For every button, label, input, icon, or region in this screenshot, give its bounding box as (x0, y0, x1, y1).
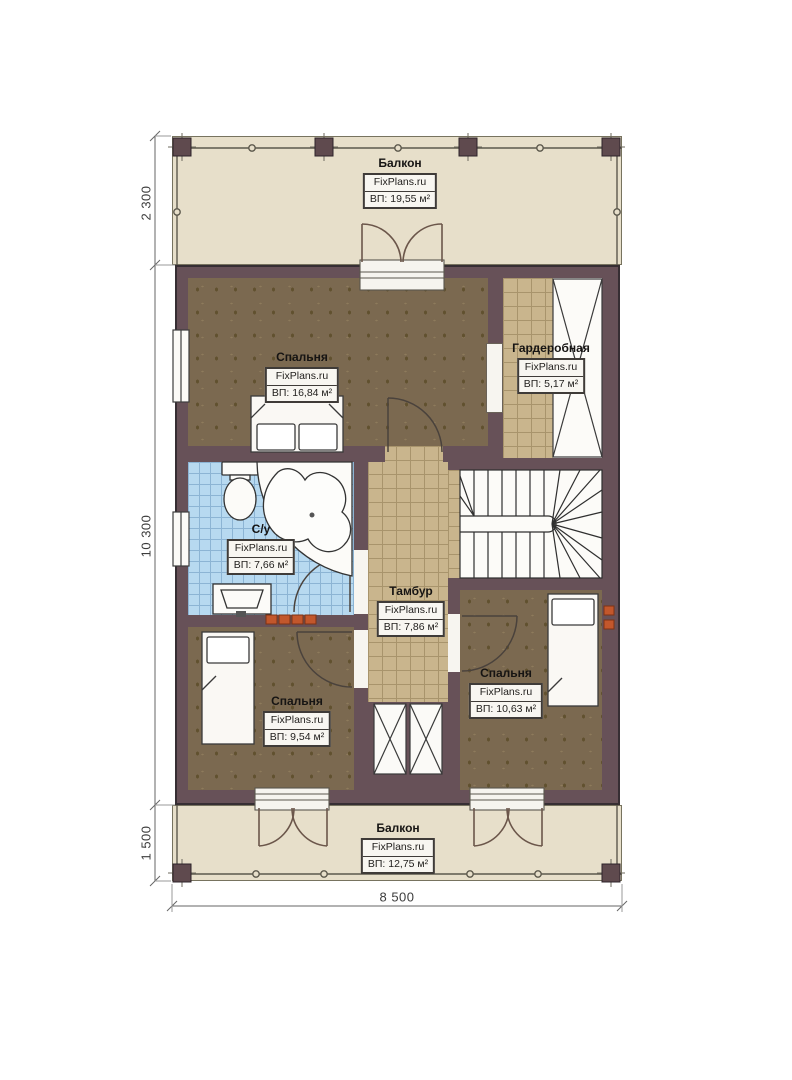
room-info-box: FixPlans.ru ВП: 19,55 м² (363, 173, 437, 209)
watermark: FixPlans.ru (379, 603, 443, 619)
room-name: Спальня (263, 694, 331, 708)
staircase (460, 470, 602, 578)
bed (548, 594, 598, 706)
room-label-bedroom-bottom-right: Спальня FixPlans.ru ВП: 10,63 м² (469, 666, 543, 719)
room-area: ВП: 16,84 м² (267, 385, 337, 402)
bed (202, 632, 254, 744)
room-name: Балкон (361, 821, 435, 835)
dimension-bottom-width: 8 500 (379, 890, 414, 905)
room-label-bedroom-top-left: Спальня FixPlans.ru ВП: 16,84 м² (265, 350, 339, 403)
watermark: FixPlans.ru (363, 840, 433, 856)
room-label-vestibule: Тамбур FixPlans.ru ВП: 7,86 м² (377, 584, 445, 637)
room-name: Спальня (265, 350, 339, 364)
room-info-box: FixPlans.ru ВП: 7,86 м² (377, 601, 445, 637)
room-label-bedroom-bottom-left: Спальня FixPlans.ru ВП: 9,54 м² (263, 694, 331, 747)
watermark: FixPlans.ru (471, 685, 541, 701)
closet-cells (374, 704, 442, 774)
room-area: ВП: 5,17 м² (519, 376, 583, 393)
watermark: FixPlans.ru (365, 175, 435, 191)
dimension-left-top: 2 300 (139, 185, 154, 220)
room-area: ВП: 10,63 м² (471, 701, 541, 718)
sink (213, 584, 271, 617)
room-info-box: FixPlans.ru ВП: 12,75 м² (361, 838, 435, 874)
room-area: ВП: 19,55 м² (365, 191, 435, 208)
room-area: ВП: 12,75 м² (363, 856, 433, 873)
toilet (222, 462, 258, 520)
dimension-left-middle: 10 300 (139, 515, 154, 558)
room-name: Гардеробная (512, 341, 590, 355)
watermark: FixPlans.ru (265, 713, 329, 729)
room-name: Спальня (469, 666, 543, 680)
room-area: ВП: 7,66 м² (229, 557, 293, 574)
room-name: Балкон (363, 156, 437, 170)
room-name: С/у (227, 522, 295, 536)
dimension-left-bottom: 1 500 (139, 825, 154, 860)
room-area: ВП: 7,86 м² (379, 619, 443, 636)
watermark: FixPlans.ru (267, 369, 337, 385)
watermark: FixPlans.ru (229, 541, 293, 557)
room-label-wardrobe: Гардеробная FixPlans.ru ВП: 5,17 м² (512, 341, 590, 394)
room-name: Тамбур (377, 584, 445, 598)
room-info-box: FixPlans.ru ВП: 10,63 м² (469, 683, 543, 719)
room-info-box: FixPlans.ru ВП: 9,54 м² (263, 711, 331, 747)
room-label-bathroom: С/у FixPlans.ru ВП: 7,66 м² (227, 522, 295, 575)
room-label-balcony-bottom: Балкон FixPlans.ru ВП: 12,75 м² (361, 821, 435, 874)
room-area: ВП: 9,54 м² (265, 729, 329, 746)
room-info-box: FixPlans.ru ВП: 16,84 м² (265, 367, 339, 403)
bed (251, 396, 343, 452)
watermark: FixPlans.ru (519, 360, 583, 376)
room-label-balcony-top: Балкон FixPlans.ru ВП: 19,55 м² (363, 156, 437, 209)
floor-plan: Балкон FixPlans.ru ВП: 19,55 м² Спальня … (0, 0, 792, 1080)
room-info-box: FixPlans.ru ВП: 5,17 м² (517, 358, 585, 394)
room-info-box: FixPlans.ru ВП: 7,66 м² (227, 539, 295, 575)
window (173, 330, 189, 566)
